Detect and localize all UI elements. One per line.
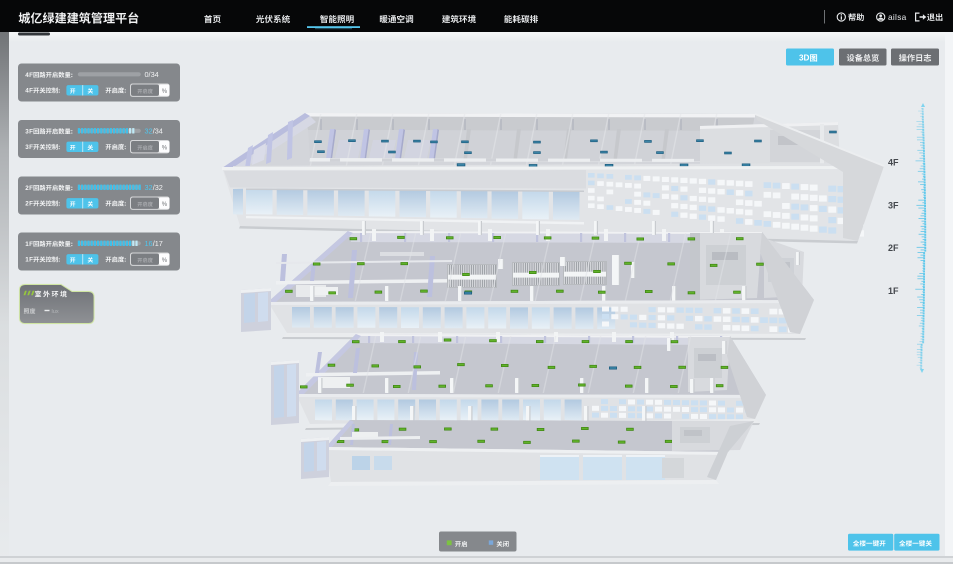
svg-text:%: % bbox=[162, 89, 168, 95]
svg-text:%: % bbox=[162, 258, 168, 264]
svg-text:32: 32 bbox=[145, 183, 153, 192]
svg-text:lux: lux bbox=[52, 309, 59, 315]
svg-text:F: F bbox=[29, 241, 33, 248]
svg-text:F: F bbox=[29, 144, 33, 151]
svg-text:3D: 3D bbox=[799, 54, 810, 63]
svg-text:16: 16 bbox=[145, 239, 153, 248]
svg-text:4F: 4F bbox=[888, 158, 899, 168]
svg-text:F: F bbox=[29, 185, 33, 192]
svg-text:F: F bbox=[29, 72, 33, 79]
svg-text:F: F bbox=[29, 201, 33, 208]
svg-text:/34: /34 bbox=[153, 127, 163, 136]
svg-text:%: % bbox=[162, 202, 168, 208]
svg-text:2F: 2F bbox=[888, 243, 899, 253]
svg-text:ailsa: ailsa bbox=[888, 12, 907, 22]
svg-text:%: % bbox=[162, 145, 168, 151]
svg-text:F: F bbox=[29, 257, 33, 264]
svg-text:F: F bbox=[29, 129, 33, 136]
svg-text:/17: /17 bbox=[153, 239, 163, 248]
svg-text:/32: /32 bbox=[153, 183, 163, 192]
svg-text:F: F bbox=[29, 88, 33, 95]
svg-text:0/34: 0/34 bbox=[145, 70, 159, 79]
svg-text:1F: 1F bbox=[888, 286, 899, 296]
svg-text:32: 32 bbox=[145, 127, 153, 136]
svg-text:3F: 3F bbox=[888, 201, 899, 211]
